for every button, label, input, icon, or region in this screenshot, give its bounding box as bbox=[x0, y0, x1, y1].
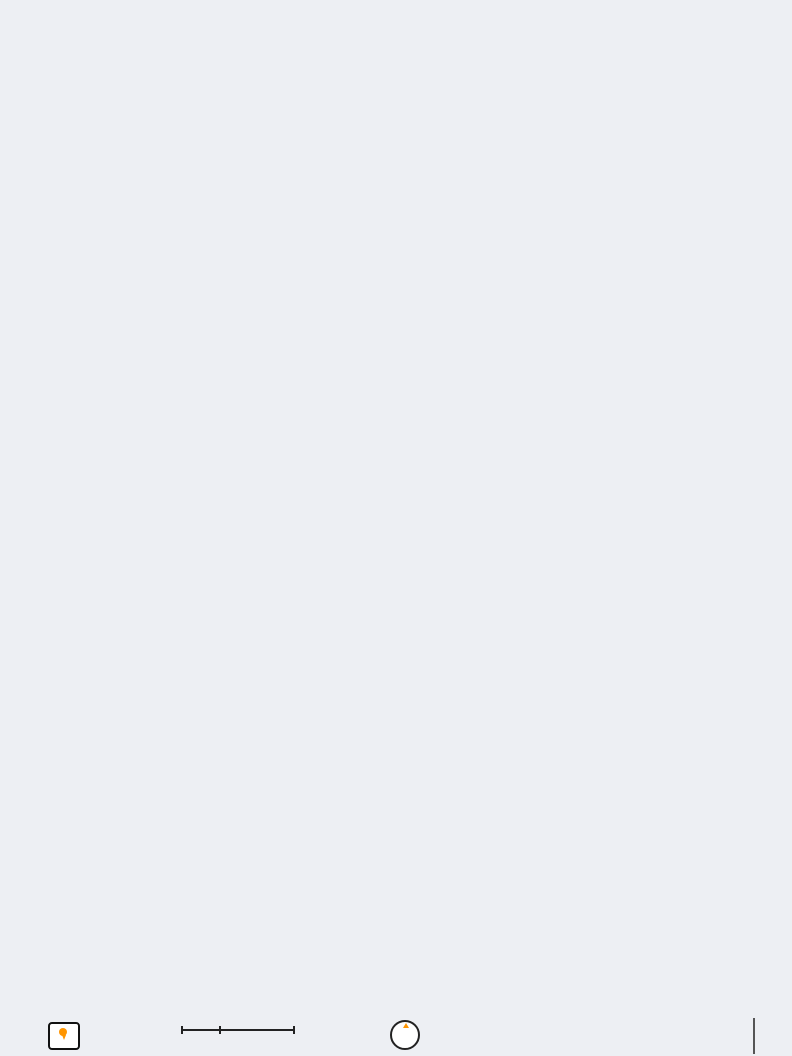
topo-map-page bbox=[0, 0, 792, 1056]
map-canvas bbox=[0, 0, 792, 1056]
